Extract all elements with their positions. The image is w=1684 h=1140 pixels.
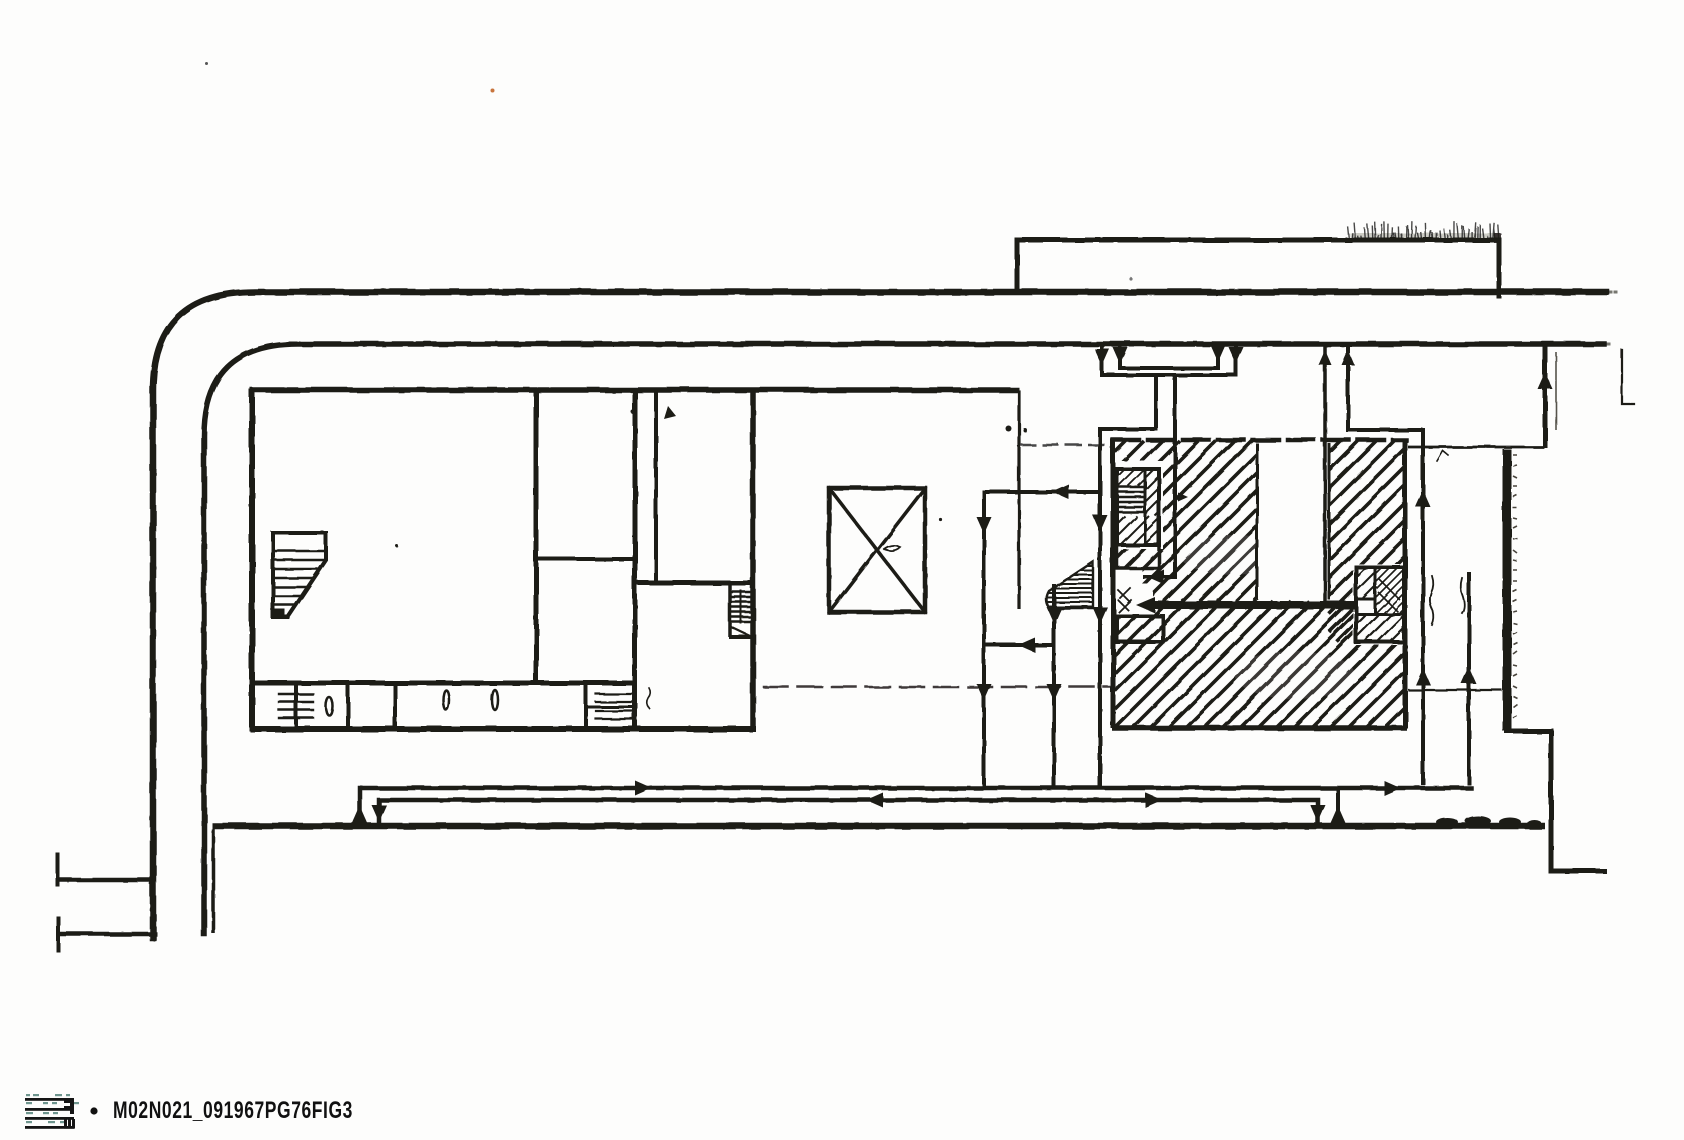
svg-text:M02N021_091967PG76FIG3: M02N021_091967PG76FIG3 <box>113 1096 353 1124</box>
